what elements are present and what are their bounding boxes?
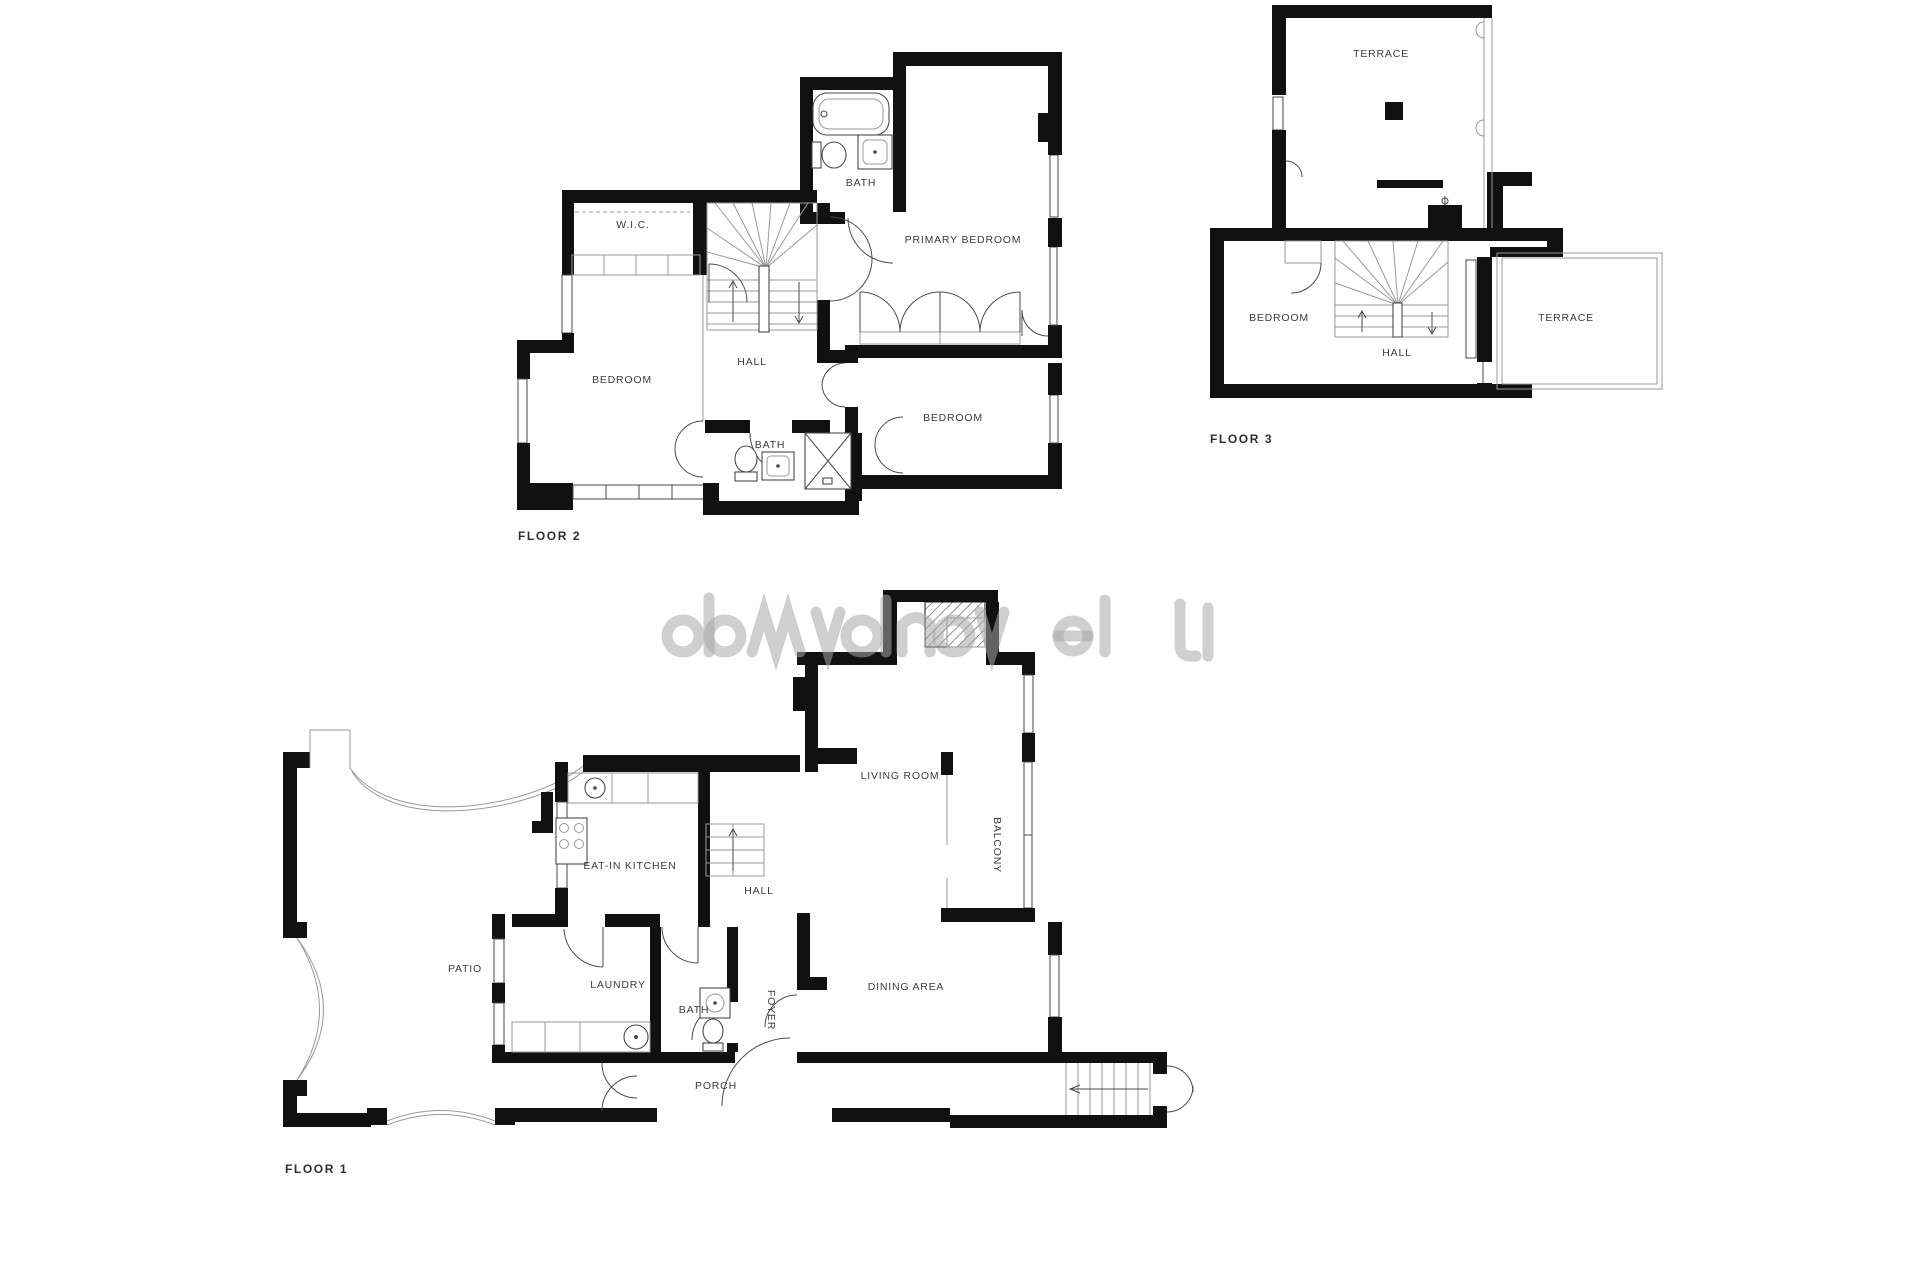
room-label-porch: PORCH xyxy=(695,1080,737,1092)
toilet-icon xyxy=(812,142,846,168)
room-label-foyer: FOYER xyxy=(765,990,777,1030)
stove-icon xyxy=(556,818,587,864)
floor2-walls xyxy=(517,52,1062,515)
kitchen-counter xyxy=(568,773,698,803)
sink-icon xyxy=(858,135,892,169)
room-label-bath-bottom: BATH xyxy=(755,439,785,451)
room-label-hall-f1: HALL xyxy=(744,885,773,897)
floor1-walls xyxy=(283,590,1167,1128)
floor3-stairs xyxy=(1335,241,1448,337)
laundry-counter xyxy=(512,1022,650,1052)
toilet-icon xyxy=(735,446,757,481)
room-label-living-room: LIVING ROOM xyxy=(861,770,940,782)
room-label-bath-top: BATH xyxy=(846,177,876,189)
room-label-dining-area: DINING AREA xyxy=(868,981,944,993)
floor3-label: FLOOR 3 xyxy=(1210,432,1273,446)
shower-icon xyxy=(805,433,851,489)
room-label-primary-bedroom: PRIMARY BEDROOM xyxy=(905,234,1022,246)
sink-icon xyxy=(762,452,794,480)
room-label-patio: PATIO xyxy=(448,963,482,975)
floor2-plan: W.I.C. BATH PRIMARY BEDROOM BEDROOM HALL… xyxy=(517,52,1062,543)
room-label-bedroom-f3: BEDROOM xyxy=(1249,312,1309,324)
toilet-icon xyxy=(703,1019,723,1051)
room-label-balcony: BALCONY xyxy=(991,817,1003,873)
floor3-walls xyxy=(1210,5,1563,398)
room-label-kitchen: EAT-IN KITCHEN xyxy=(583,860,676,872)
floor-plan-drawing: W.I.C. BATH PRIMARY BEDROOM BEDROOM HALL… xyxy=(0,0,1920,1280)
floor1-stairs xyxy=(706,824,1150,1115)
closet xyxy=(1285,241,1321,263)
room-label-wic: W.I.C. xyxy=(616,219,649,231)
room-label-laundry: LAUNDRY xyxy=(590,979,646,991)
floor2-label: FLOOR 2 xyxy=(518,529,581,543)
floor1-label: FLOOR 1 xyxy=(285,1162,348,1176)
room-label-terrace-top: TERRACE xyxy=(1353,48,1409,60)
room-label-bedroom-left: BEDROOM xyxy=(592,374,652,386)
room-label-bedroom-right: BEDROOM xyxy=(923,412,983,424)
floor-plan-page: W.I.C. BATH PRIMARY BEDROOM BEDROOM HALL… xyxy=(0,0,1920,1280)
floor3-plan: TERRACE BEDROOM HALL TERRACE FLOOR 3 xyxy=(1210,5,1662,446)
floor1-plan: PATIO EAT-IN KITCHEN HALL LIVING ROOM BA… xyxy=(283,590,1193,1176)
room-label-hall-f3: HALL xyxy=(1382,347,1411,359)
room-label-terrace-side: TERRACE xyxy=(1538,312,1594,324)
room-label-hall-f2: HALL xyxy=(737,356,766,368)
room-label-bath-f1: BATH xyxy=(679,1004,709,1016)
floor3-parapets xyxy=(1476,18,1662,389)
